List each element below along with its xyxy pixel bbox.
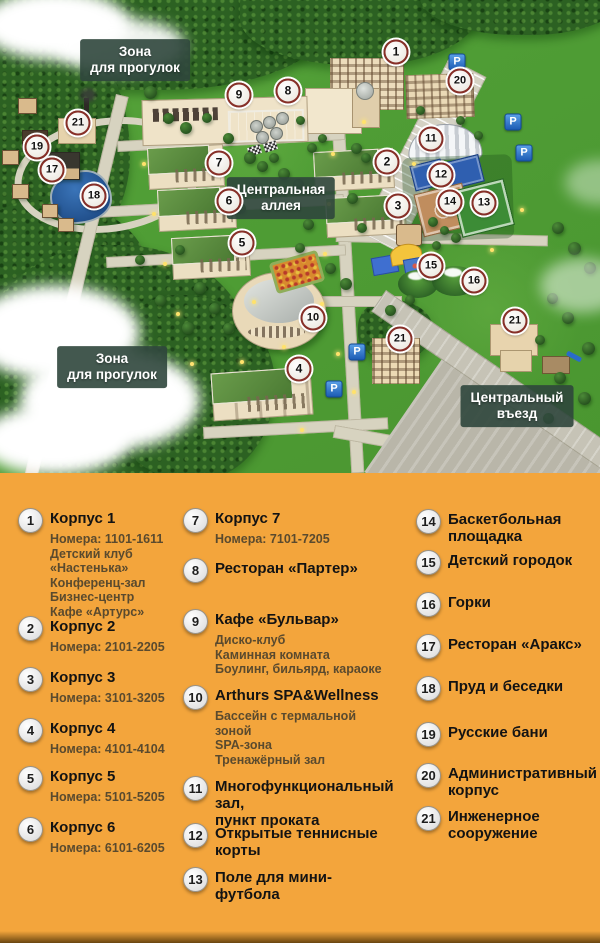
map-marker-16: 16 (462, 269, 487, 294)
legend-item-title: Корпус 4 (50, 720, 176, 737)
legend-item-detail: Номера: 3101-3205 (50, 691, 176, 706)
legend-item-detail: Конференц-зал (50, 576, 176, 591)
legend-item-title: Кафе «Бульвар» (215, 611, 395, 628)
legend-item-detail: Номера: 7101-7205 (215, 532, 395, 547)
map-marker-6: 6 (217, 189, 242, 214)
map-marker-21: 21 (66, 111, 91, 136)
legend-number-badge: 8 (183, 558, 208, 583)
legend-item-3: 3Корпус 3Номера: 3101-3205 (18, 667, 176, 706)
legend-number-badge: 4 (18, 718, 43, 743)
legend-item-21: 21Инженерное сооружение (416, 806, 588, 842)
legend-item-title: Корпус 3 (50, 669, 176, 686)
legend-item-detail: Тренажёрный зал (215, 753, 395, 768)
legend-item-13: 13Поле для мини-футбола (183, 867, 395, 903)
map-marker-2: 2 (375, 150, 400, 175)
map-marker-13: 13 (472, 191, 497, 216)
parking-icon: P (516, 145, 533, 162)
legend-number-badge: 7 (183, 508, 208, 533)
map-marker-20: 20 (448, 69, 473, 94)
legend-item-title: Корпус 1 (50, 510, 176, 527)
legend-item-10: 10Arthurs SPA&WellnessБассейн с термальн… (183, 685, 395, 767)
legend-item-title: Корпус 5 (50, 768, 176, 785)
legend-number-badge: 10 (183, 685, 208, 710)
legend-item-detail: Номера: 5101-5205 (50, 790, 176, 805)
legend-item-title: Русские бани (448, 724, 588, 741)
legend-number-badge: 11 (183, 776, 208, 801)
legend-item-7: 7Корпус 7Номера: 7101-7205 (183, 508, 395, 547)
legend-item-15: 15Детский городок (416, 550, 588, 569)
legend-item-9: 9Кафе «Бульвар»Диско-клубКаминная комнат… (183, 609, 395, 677)
legend-item-title: Ресторан «Партер» (215, 560, 395, 577)
legend-item-title: Горки (448, 594, 588, 611)
parking-icon: P (326, 381, 343, 398)
legend-item-6: 6Корпус 6Номера: 6101-6205 (18, 817, 176, 856)
map-marker-21: 21 (388, 327, 413, 352)
map-marker-21: 21 (503, 309, 528, 334)
legend-item-detail: Номера: 1101-1611 (50, 532, 176, 547)
legend-item-5: 5Корпус 5Номера: 5101-5205 (18, 766, 176, 805)
map-marker-19: 19 (25, 135, 50, 160)
legend-item-title: Открытые теннисные корты (215, 825, 395, 859)
legend-item-detail: Детский клуб «Настенька» (50, 547, 176, 576)
legend-item-20: 20Административный корпус (416, 763, 588, 799)
parking-icon: P (505, 114, 522, 131)
legend-number-badge: 19 (416, 722, 441, 747)
map-marker-18: 18 (82, 184, 107, 209)
parking-icon: P (349, 344, 366, 361)
legend-item-11: 11Многофункциональный зал, пункт проката (183, 776, 395, 829)
legend-item-title: Корпус 6 (50, 819, 176, 836)
legend-item-title: Корпус 7 (215, 510, 395, 527)
legend-number-badge: 21 (416, 806, 441, 831)
legend-number-badge: 14 (416, 509, 441, 534)
legend-item-title: Многофункциональный зал, пункт проката (215, 778, 395, 829)
legend-number-badge: 17 (416, 634, 441, 659)
map-marker-5: 5 (230, 231, 255, 256)
legend-number-badge: 2 (18, 616, 43, 641)
legend-item-16: 16Горки (416, 592, 588, 611)
map-marker-12: 12 (429, 163, 454, 188)
legend-item-18: 18Пруд и беседки (416, 676, 588, 695)
legend-item-8: 8Ресторан «Партер» (183, 558, 395, 577)
legend-item-title: Корпус 2 (50, 618, 176, 635)
map-marker-7: 7 (207, 151, 232, 176)
legend-item-4: 4Корпус 4Номера: 4101-4104 (18, 718, 176, 757)
legend-number-badge: 1 (18, 508, 43, 533)
map-marker-14: 14 (438, 190, 463, 215)
legend-number-badge: 5 (18, 766, 43, 791)
legend-number-badge: 3 (18, 667, 43, 692)
legend-number-badge: 18 (416, 676, 441, 701)
legend-item-title: Баскетбольная площадка (448, 511, 588, 545)
map-marker-1: 1 (384, 40, 409, 65)
legend-item-detail: Бассейн с термальной зоной (215, 709, 395, 738)
legend-number-badge: 12 (183, 823, 208, 848)
legend-number-badge: 6 (18, 817, 43, 842)
map-label-central-entrance: Центральный въезд (461, 385, 574, 427)
map-label-central-alley: Центральная аллея (227, 177, 335, 219)
legend-number-badge: 20 (416, 763, 441, 788)
resort-map: Зона для прогулокЦентральная аллеяЗона д… (0, 0, 600, 473)
legend-item-detail: Боулинг, бильярд, караоке (215, 662, 395, 677)
legend-number-badge: 9 (183, 609, 208, 634)
map-label-zone-walk-top: Зона для прогулок (80, 39, 190, 81)
legend-number-badge: 16 (416, 592, 441, 617)
legend-item-detail: Бизнес-центр (50, 590, 176, 605)
legend-item-title: Пруд и беседки (448, 678, 588, 695)
map-marker-11: 11 (419, 127, 444, 152)
legend-item-19: 19Русские бани (416, 722, 588, 741)
legend-item-title: Arthurs SPA&Wellness (215, 687, 395, 704)
legend-item-1: 1Корпус 1Номера: 1101-1611Детский клуб «… (18, 508, 176, 619)
legend-number-badge: 13 (183, 867, 208, 892)
legend-item-detail: Каминная комната (215, 648, 395, 663)
legend-item-detail: Номера: 6101-6205 (50, 841, 176, 856)
legend-item-detail: Номера: 2101-2205 (50, 640, 176, 655)
legend-item-title: Поле для мини-футбола (215, 869, 395, 903)
legend-item-detail: Диско-клуб (215, 633, 395, 648)
legend-item-title: Административный корпус (448, 765, 588, 799)
map-marker-8: 8 (276, 79, 301, 104)
legend-item-17: 17Ресторан «Аракс» (416, 634, 588, 653)
legend-panel: 1Корпус 1Номера: 1101-1611Детский клуб «… (0, 473, 600, 943)
legend-item-title: Ресторан «Аракс» (448, 636, 588, 653)
legend-item-detail: Номера: 4101-4104 (50, 742, 176, 757)
map-marker-9: 9 (227, 83, 252, 108)
legend-item-title: Детский городок (448, 552, 588, 569)
map-marker-15: 15 (419, 254, 444, 279)
legend-item-title: Инженерное сооружение (448, 808, 588, 842)
map-marker-3: 3 (386, 194, 411, 219)
legend-item-12: 12Открытые теннисные корты (183, 823, 395, 859)
map-label-zone-walk-bottom: Зона для прогулок (57, 346, 167, 388)
legend-item-2: 2Корпус 2Номера: 2101-2205 (18, 616, 176, 655)
legend-item-detail: SPA-зона (215, 738, 395, 753)
legend-number-badge: 15 (416, 550, 441, 575)
map-marker-17: 17 (40, 158, 65, 183)
resort-map-page: Зона для прогулокЦентральная аллеяЗона д… (0, 0, 600, 943)
map-marker-4: 4 (287, 357, 312, 382)
map-marker-10: 10 (301, 306, 326, 331)
legend-item-14: 14Баскетбольная площадка (416, 509, 588, 545)
